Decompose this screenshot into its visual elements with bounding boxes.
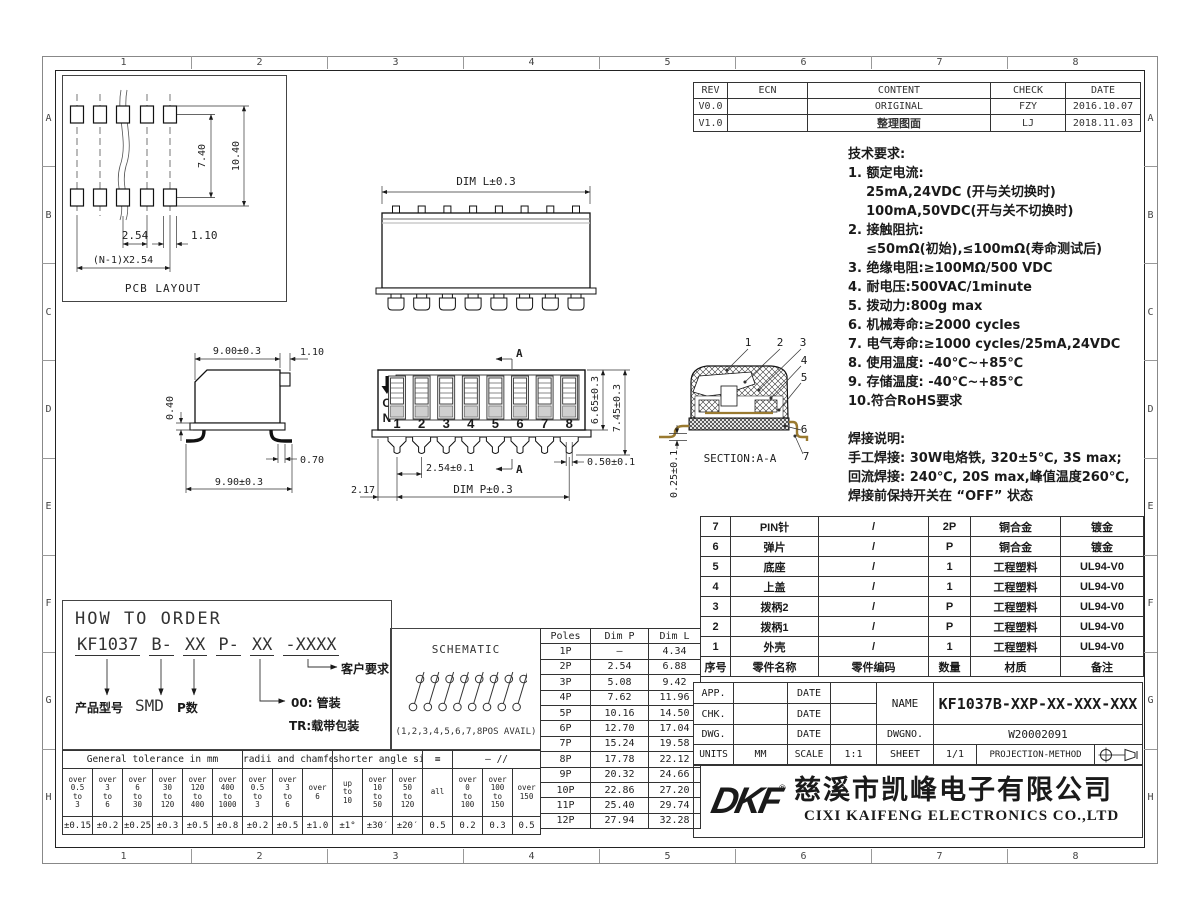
zone-col: 7 (872, 56, 1008, 69)
poles-row: 11P25.4029.74 (541, 798, 701, 813)
zone-col: 3 (328, 849, 464, 863)
rev-cell: V0.0 (694, 99, 728, 115)
svg-text:6: 6 (801, 423, 808, 436)
rev-cell: 2016.10.07 (1066, 99, 1141, 115)
tol-range: over 3 to 6 (93, 769, 123, 817)
revision-table: REVECNCONTENTCHECKDATE V0.0ORIGINALFZY20… (693, 82, 1141, 132)
scale-label: SCALE (787, 744, 831, 765)
svg-text:4: 4 (801, 354, 808, 367)
technical-requirements: 技术要求: 1. 额定电流: 25mA,24VDC (开与关切换时) 100mA… (848, 145, 1148, 411)
projection-symbol-cell (1094, 744, 1143, 765)
poles-row: 2P2.546.88 (541, 659, 701, 674)
solder-line: 手工焊接: 30W电烙铁, 320±5℃, 3S max; (848, 449, 1148, 468)
side-leg-left (186, 430, 204, 441)
tol-range: over 50 to 120 (393, 769, 423, 817)
zone-row: H (1144, 750, 1157, 846)
date-label: DATE (787, 724, 831, 745)
dwgno-value: W20002091 (933, 724, 1143, 745)
empty-cell (733, 724, 788, 745)
poles-row: 8P17.7822.12 (541, 752, 701, 767)
zone-strip-bottom: 12345678 (56, 849, 1143, 863)
poles-table: PolesDim PDim L 1P—4.34 2P2.546.88 3P5.0… (540, 628, 701, 829)
parts-row: 5底座/1工程塑料UL94-V0 (701, 557, 1144, 577)
company-name-en: CIXI KAIFENG ELECTRONICS CO.,LTD (804, 808, 1139, 825)
rev-cell: LJ (991, 115, 1066, 132)
chk-label: CHK. (693, 703, 734, 725)
zone-row: E (42, 459, 55, 556)
dim-side-bottom: 9.90±0.3 (215, 477, 263, 488)
zone-strip-top: 12345678 (56, 56, 1143, 69)
order-label-smd: SMD (135, 696, 164, 715)
front-pins (388, 437, 578, 454)
dim-side-top: 9.00±0.3 (213, 346, 261, 357)
tol-value: ±0.3 (153, 817, 183, 835)
schematic-symbols (405, 663, 527, 721)
rev-header: DATE (1066, 83, 1141, 99)
zone-row: G (42, 653, 55, 750)
front-body (378, 370, 585, 430)
rev-cell: 2018.11.03 (1066, 115, 1141, 132)
tol-range: over 6 to 30 (123, 769, 153, 817)
tol-group: shorter angle side (333, 751, 423, 769)
title-block: APP. DATE CHK. DATE NAME KF1037B-XXP-XX-… (693, 682, 1143, 765)
zone-col: 3 (328, 56, 464, 69)
dim-front-total-height: 7.45±0.3 (612, 384, 623, 432)
order-label-tube: 00: 管装 (291, 694, 341, 711)
parts-row: 6弹片/P铜合金镀金 (701, 537, 1144, 557)
zone-row: F (1144, 556, 1157, 653)
poles-row: 6P12.7017.04 (541, 721, 701, 736)
app-label: APP. (693, 682, 734, 704)
tol-range: over 100 to 150 (483, 769, 513, 817)
zone-col: 7 (872, 849, 1008, 863)
dim-front-body-height: 6.65±0.3 (590, 376, 601, 424)
tol-value: ±0.2 (243, 817, 273, 835)
order-label-model: 产品型号 (75, 699, 123, 716)
parts-footer: 序号零件名称零件编码数量材质备注 (701, 657, 1144, 677)
empty-cell (830, 724, 877, 745)
parts-table: 7PIN针/2P铜合金镀金 6弹片/P铜合金镀金 5底座/1工程塑料UL94-V… (700, 516, 1144, 677)
dwgno-label: DWGNO. (876, 724, 934, 745)
svg-text:3: 3 (800, 336, 807, 349)
section-label-top: A (516, 347, 523, 360)
svg-text:7: 7 (541, 416, 548, 431)
tol-value: ±20′ (393, 817, 423, 835)
poles-row: 9P20.3224.66 (541, 767, 701, 782)
order-label-tr: TR:载带包装 (289, 717, 359, 734)
zone-col: 8 (1008, 849, 1143, 863)
company-block: DKF® 慈溪市凯峰电子有限公司 CIXI KAIFENG ELECTRONIC… (693, 765, 1143, 838)
units-value: MM (733, 744, 788, 765)
zone-col: 6 (736, 56, 872, 69)
tol-value: ±0.15 (63, 817, 93, 835)
parts-row: 1外壳/1工程塑料UL94-V0 (701, 637, 1144, 657)
section-part-left (699, 400, 719, 412)
svg-text:1: 1 (745, 336, 752, 349)
section-caption: SECTION:A-A (704, 452, 777, 465)
tech-item: 5. 拨动力:800g max (848, 297, 1148, 316)
tol-value: ±0.5 (183, 817, 213, 835)
first-angle-projection-icon (1097, 747, 1141, 763)
tech-item: 25mA,24VDC (开与关切换时) (848, 183, 1148, 202)
tol-range: up to 10 (333, 769, 363, 817)
svg-text:7: 7 (803, 450, 810, 463)
order-label-poles: P数 (177, 699, 198, 716)
tol-group-flatness-icon: ≡ (423, 751, 453, 769)
tol-range: over 10 to 50 (363, 769, 393, 817)
zone-row: G (1144, 653, 1157, 750)
tech-title: 技术要求: (848, 145, 1148, 164)
svg-text:5: 5 (801, 371, 808, 384)
zone-col: 6 (736, 849, 872, 863)
tech-item: 4. 耐电压:500VAC/1minute (848, 278, 1148, 297)
empty-cell (733, 703, 788, 725)
sheet-value: 1/1 (933, 744, 977, 765)
company-name-cn: 慈溪市凯峰电子有限公司 (794, 768, 1139, 807)
tech-item: 3. 绝缘电阻:≥100MΩ/500 VDC (848, 259, 1148, 278)
scale-value: 1:1 (830, 744, 877, 765)
parts-row: 4上盖/1工程塑料UL94-V0 (701, 577, 1144, 597)
tech-item: 100mA,50VDC(开与关不切换时) (848, 202, 1148, 221)
tech-item: 10.符合RoHS要求 (848, 392, 1148, 411)
section-actuator (721, 386, 737, 406)
date-label: DATE (787, 682, 831, 704)
front-view-drawing: O N 12345678 A A (350, 345, 642, 510)
dim-side-tab: 1.10 (300, 347, 324, 358)
zone-row: C (42, 264, 55, 361)
registered-mark-icon: ® (779, 783, 786, 793)
pcb-layout-view: 7.40 10.40 2.54 1.10 (N-1)X2.54 PCB LAYO… (62, 75, 287, 302)
side-leg-right (271, 430, 292, 441)
logo-text: DKF (708, 780, 784, 822)
rev-cell: FZY (991, 99, 1066, 115)
section-base (689, 418, 789, 430)
dim-pcb-pad: 1.10 (191, 229, 218, 242)
tol-range: all (423, 769, 453, 817)
solder-line: 回流焊接: 240℃, 20S max,峰值温度260℃, (848, 468, 1148, 487)
rev-cell (728, 115, 808, 132)
tol-range: over 150 (513, 769, 541, 817)
side-body (195, 370, 280, 423)
date-label: DATE (787, 703, 831, 725)
zone-row: D (42, 361, 55, 458)
top-body (382, 213, 590, 288)
tech-item: 2. 接触阻抗: (848, 221, 1148, 240)
tol-value: 0.5 (513, 817, 541, 835)
dim-front-pin-width: 0.50±0.1 (587, 457, 635, 468)
tol-value: 0.3 (483, 817, 513, 835)
dim-pcb-row: 7.40 (197, 144, 208, 168)
tech-item: 6. 机械寿命:≥2000 cycles (848, 316, 1148, 335)
parts-row: 2拨柄1/P工程塑料UL94-V0 (701, 617, 1144, 637)
zone-col: 4 (464, 56, 600, 69)
poles-header: Dim P (591, 629, 649, 644)
zone-col: 2 (192, 56, 328, 69)
pcb-layout-drawing: 7.40 10.40 2.54 1.10 (N-1)X2.54 PCB LAYO… (63, 76, 286, 301)
side-seat (190, 423, 285, 430)
svg-text:1: 1 (393, 416, 400, 431)
tol-value: ±0.8 (213, 817, 243, 835)
rev-cell: ORIGINAL (808, 99, 991, 115)
solder-title: 焊接说明: (848, 430, 1148, 449)
tol-value: 0.2 (453, 817, 483, 835)
sheet-label: SHEET (876, 744, 934, 765)
tol-group: radii and chamfers (243, 751, 333, 769)
parts-row: 7PIN针/2P铜合金镀金 (701, 517, 1144, 537)
empty-cell (733, 682, 788, 704)
zone-row: A (42, 70, 55, 167)
rev-header: CONTENT (808, 83, 991, 99)
poles-row: 3P5.089.42 (541, 675, 701, 690)
top-seat (376, 288, 596, 294)
tol-range: over 400 to 1000 (213, 769, 243, 817)
tech-item: ≤50mΩ(初始),≤100mΩ(寿命测试后) (848, 240, 1148, 259)
soldering-notes: 焊接说明: 手工焊接: 30W电烙铁, 320±5℃, 3S max; 回流焊接… (848, 430, 1148, 506)
rev-cell: V1.0 (694, 115, 728, 132)
zone-row: B (42, 167, 55, 264)
rev-header: REV (694, 83, 728, 99)
zone-col: 5 (600, 56, 736, 69)
dim-section-pin: 0.25±0.1 (669, 450, 680, 498)
dim-front-edge: 2.17 (351, 485, 375, 496)
tol-group: General tolerance in mm (63, 751, 243, 769)
dim-pcb-span: (N-1)X2.54 (93, 255, 153, 266)
how-to-order-box: HOW TO ORDER KF1037B-XXP-XX-XXXX 产品型号 SM… (62, 600, 392, 750)
tol-range: over 120 to 400 (183, 769, 213, 817)
tol-range: over 0.5 to 3 (243, 769, 273, 817)
top-view-drawing: DIM L±0.3 (360, 172, 605, 317)
dwg-label: DWG. (693, 724, 734, 745)
tol-range: over 0.5 to 3 (63, 769, 93, 817)
drawing-sheet: 12345678 12345678 ABCDEFGH ABCDEFGH REVE… (0, 0, 1200, 910)
dim-pcb-total: 10.40 (231, 141, 242, 171)
tol-value: ±30′ (363, 817, 393, 835)
poles-row: 5P10.1614.50 (541, 705, 701, 720)
tol-group-parallel-icon: — // (453, 751, 541, 769)
empty-cell (830, 682, 877, 704)
zone-col: 1 (56, 849, 192, 863)
dim-front-span: DIM P±0.3 (453, 483, 513, 496)
zone-col: 2 (192, 849, 328, 863)
svg-text:5: 5 (492, 416, 499, 431)
solder-line: 焊接前保持开关在 “OFF” 状态 (848, 487, 1148, 506)
svg-text:6: 6 (516, 416, 523, 431)
poles-header: Dim L (649, 629, 701, 644)
section-label-bottom: A (516, 463, 523, 476)
section-part-right (755, 400, 777, 412)
tol-value: ±1° (333, 817, 363, 835)
poles-row: 12P27.9432.28 (541, 813, 701, 828)
top-tabs (393, 206, 580, 213)
order-label-customer: 客户要求 (341, 660, 389, 677)
zone-row: F (42, 556, 55, 653)
pcb-caption: PCB LAYOUT (125, 282, 201, 295)
tol-range: over 0 to 100 (453, 769, 483, 817)
tech-item: 7. 电气寿命:≥1000 cycles/25mA,24VDC (848, 335, 1148, 354)
side-tab (280, 373, 290, 386)
part-name-value: KF1037B-XXP-XX-XXX-XXX (933, 682, 1143, 725)
name-label: NAME (876, 682, 934, 725)
svg-text:2: 2 (418, 416, 425, 431)
tolerance-table: General tolerance in mm radii and chamfe… (62, 750, 541, 835)
svg-text:2: 2 (777, 336, 784, 349)
tol-range: over 6 (303, 769, 333, 817)
svg-text:8: 8 (566, 416, 573, 431)
svg-text:4: 4 (467, 416, 475, 431)
rev-cell (728, 99, 808, 115)
empty-cell (830, 703, 877, 725)
poles-header: Poles (541, 629, 591, 644)
schematic-caption: (1,2,3,4,5,6,7,8POS AVAIL) (391, 727, 541, 737)
pads (71, 106, 177, 206)
tol-value: ±0.25 (123, 817, 153, 835)
zone-col: 8 (1008, 56, 1143, 69)
side-view-drawing: 9.00±0.3 1.10 0.40 0.70 9.90±0.3 (140, 340, 345, 505)
dim-side-step: 0.40 (165, 396, 176, 420)
tol-range: over 3 to 6 (273, 769, 303, 817)
rev-header: ECN (728, 83, 808, 99)
poles-row: 4P7.6211.96 (541, 690, 701, 705)
company-logo: DKF® (712, 780, 786, 822)
tech-item: 1. 额定电流: (848, 164, 1148, 183)
units-label: UNITS (693, 744, 734, 765)
top-pins (388, 292, 584, 310)
schematic-box: SCHEMATIC (1,2,3,4,5,6,7,8POS AVAIL) (390, 628, 542, 750)
dim-top-length: DIM L±0.3 (456, 175, 516, 188)
dim-pcb-pitch: 2.54 (122, 229, 149, 242)
section-view-drawing: 123 45 67 0.25±0.1 SECTION:A-A (655, 330, 857, 515)
tol-value: ±0.2 (93, 817, 123, 835)
poles-row: 10P22.8627.20 (541, 782, 701, 797)
poles-row: 1P—4.34 (541, 644, 701, 659)
front-seat (372, 430, 591, 437)
dim-front-pitch: 2.54±0.1 (426, 463, 474, 474)
tol-value: 0.5 (423, 817, 453, 835)
svg-text:3: 3 (443, 416, 450, 431)
tol-value: ±1.0 (303, 817, 333, 835)
tol-value: ±0.5 (273, 817, 303, 835)
parts-row: 3拨柄2/P工程塑料UL94-V0 (701, 597, 1144, 617)
zone-col: 4 (464, 849, 600, 863)
tech-item: 8. 使用温度: -40℃~+85℃ (848, 354, 1148, 373)
tol-range: over 30 to 120 (153, 769, 183, 817)
poles-row: 7P15.2419.58 (541, 736, 701, 751)
zone-col: 5 (600, 849, 736, 863)
zone-strip-left: ABCDEFGH (42, 70, 55, 846)
zone-col: 1 (56, 56, 192, 69)
projection-method-label: PROJECTION-METHOD (976, 744, 1095, 765)
tech-item: 9. 存储温度: -40℃~+85℃ (848, 373, 1148, 392)
rev-header: CHECK (991, 83, 1066, 99)
rev-cell: 整理图面 (808, 115, 991, 132)
schematic-title: SCHEMATIC (391, 643, 541, 656)
dim-side-leg: 0.70 (300, 455, 324, 466)
zone-row: H (42, 750, 55, 846)
